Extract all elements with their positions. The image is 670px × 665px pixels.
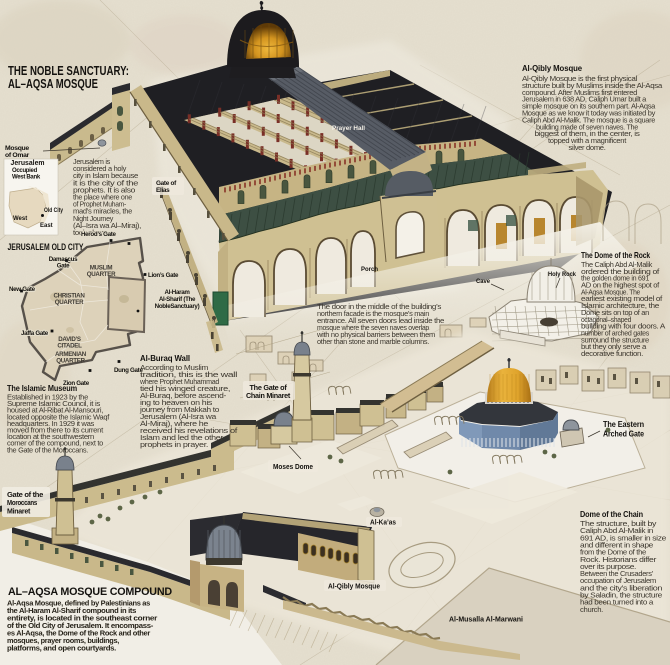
svg-text:NobleSanctuary): NobleSanctuary) [155,303,200,310]
svg-text:JERUSALEM OLD CITY: JERUSALEM OLD CITY [8,242,85,252]
svg-text:Al-Qibly Mosque: Al-Qibly Mosque [522,63,582,73]
svg-text:West Bank: West Bank [12,175,41,181]
svg-text:Al-Ka’as: Al-Ka’as [370,518,396,527]
svg-text:AL–AQSA MOSQUE COMPOUND: AL–AQSA MOSQUE COMPOUND [8,586,172,598]
svg-text:Occupied: Occupied [12,168,38,174]
svg-text:the Gate of the Moroccans.: the Gate of the Moroccans. [7,445,88,454]
svg-text:silver dome.: silver dome. [569,143,606,152]
svg-text:other than stone and marble co: other than stone and marble columns. [317,337,429,346]
svg-text:Chain Minaret: Chain Minaret [246,391,291,400]
svg-text:Porch: Porch [361,266,378,273]
svg-text:Al-Sharif (The: Al-Sharif (The [159,296,196,303]
svg-text:AL–AQSA MOSQUE: AL–AQSA MOSQUE [8,76,98,91]
svg-text:Al-Buraq Wall: Al-Buraq Wall [140,353,190,363]
svg-text:QUARTER: QUARTER [87,271,116,278]
svg-text:Dome of the Chain: Dome of the Chain [580,509,643,519]
svg-text:platforms, and open courtyard: platforms, and open courtyards. [7,644,116,653]
svg-text:QUARTER: QUARTER [56,358,85,365]
svg-text:Herod’s Gate: Herod’s Gate [81,231,117,238]
svg-text:Mosque: Mosque [5,145,29,152]
svg-text:The Islamic Museum: The Islamic Museum [7,383,77,393]
svg-text:Minaret: Minaret [7,506,31,515]
svg-text:Jerusalem: Jerusalem [11,160,45,167]
svg-text:of Omar: of Omar [5,152,30,159]
svg-text:Holy Rock: Holy Rock [548,271,577,278]
svg-text:Arched Gate: Arched Gate [603,429,644,439]
svg-text:Al-Haram: Al-Haram [164,289,190,296]
svg-text:Al-Qibly Mosque: Al-Qibly Mosque [328,582,380,591]
svg-text:The Dome of the Rock: The Dome of the Rock [581,250,650,260]
svg-text:West: West [13,216,27,222]
svg-text:Al-Musalla Al-Marwani: Al-Musalla Al-Marwani [449,615,523,624]
svg-text:The Eastern: The Eastern [603,419,644,429]
svg-text:Gate: Gate [57,263,70,270]
svg-text:CITADEL: CITADEL [57,343,82,350]
svg-text:Gate of: Gate of [156,180,177,187]
svg-text:Cave: Cave [476,278,491,285]
svg-text:decorative function.: decorative function. [581,349,643,358]
svg-text:Elias: Elias [156,187,170,194]
svg-text:East: East [40,223,53,229]
svg-text:Lion’s Gate: Lion’s Gate [148,272,179,279]
svg-text:Old City: Old City [44,208,64,214]
svg-text:church.: church. [580,605,603,614]
svg-text:Prayer Hall: Prayer Hall [332,125,365,132]
svg-text:Jaffa Gate: Jaffa Gate [21,330,49,337]
svg-text:prophets in prayer.: prophets in prayer. [140,440,208,449]
svg-text:QUARTER: QUARTER [55,299,84,306]
svg-text:Moses Dome: Moses Dome [273,462,313,471]
